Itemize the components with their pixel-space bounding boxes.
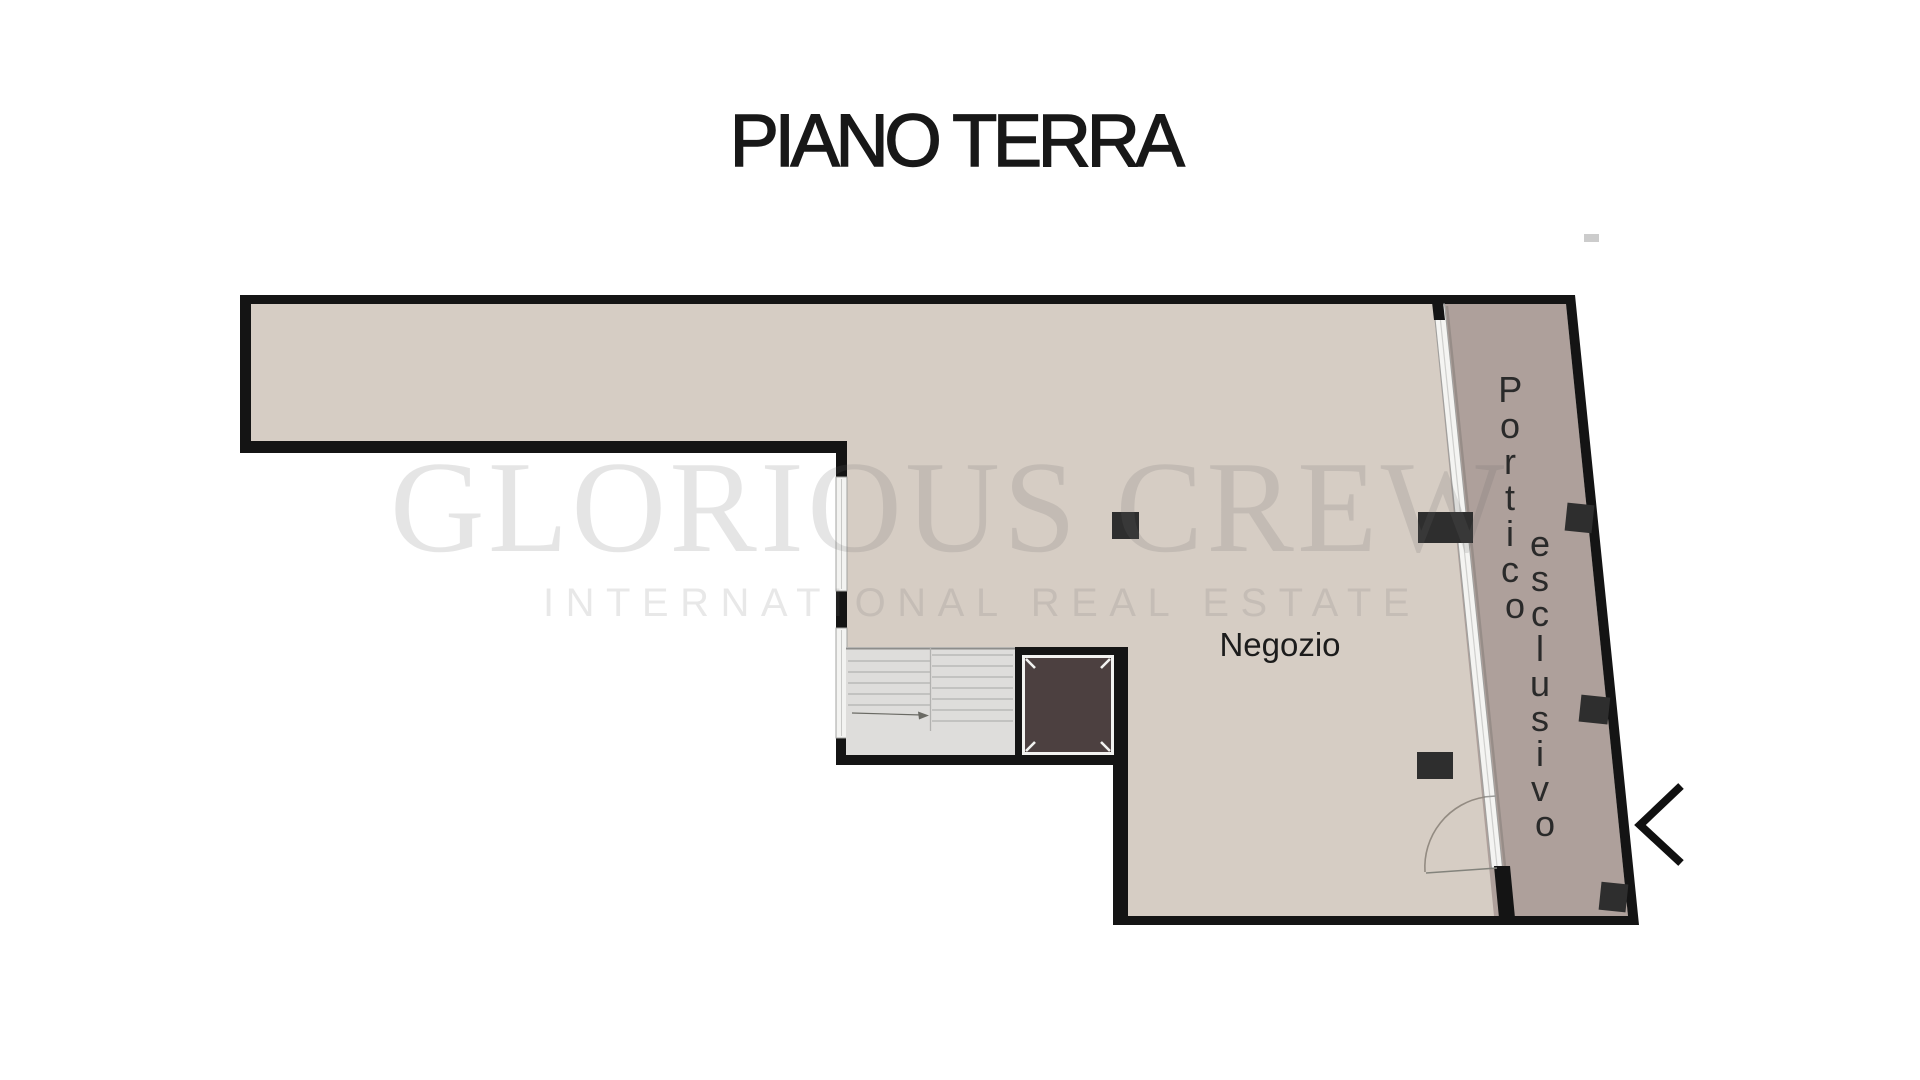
svg-text:INTERNATIONAL REAL ESTATE: INTERNATIONAL REAL ESTATE [543,581,1421,625]
svg-text:Negozio: Negozio [1219,626,1340,663]
svg-text:PIANO TERRA: PIANO TERRA [730,99,1186,182]
svg-text:e s c l u: e s c l u s i v o [1530,523,1560,844]
svg-text:GLORIOUS CREW: GLORIOUS CREW [390,435,1508,580]
